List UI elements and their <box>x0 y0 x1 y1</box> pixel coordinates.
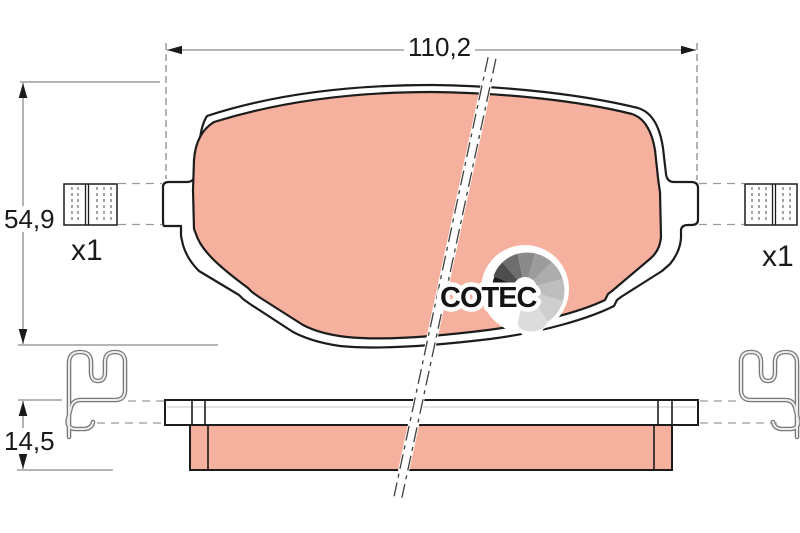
drawing-canvas: COTEC <box>0 0 800 533</box>
pad-side-view <box>165 400 698 470</box>
brake-pad-technical-drawing: COTEC 110,2 54,9 14,5 x1 x1 <box>0 0 800 533</box>
dim-height-label: 54,9 <box>0 206 59 232</box>
pad-front-view <box>163 85 698 347</box>
spring-clip-left <box>68 352 125 437</box>
cotec-logo-text: COTEC <box>440 282 538 314</box>
spring-clip-right <box>741 352 798 437</box>
shim-symbol-right <box>745 184 797 225</box>
friction-side <box>190 425 672 470</box>
dim-thickness-label: 14,5 <box>0 428 59 454</box>
shim-symbol-left <box>64 184 117 225</box>
backplate-side <box>165 400 698 425</box>
qty-right-label: x1 <box>762 242 794 272</box>
qty-left-label: x1 <box>71 236 103 266</box>
dim-width-label: 110,2 <box>404 34 475 60</box>
